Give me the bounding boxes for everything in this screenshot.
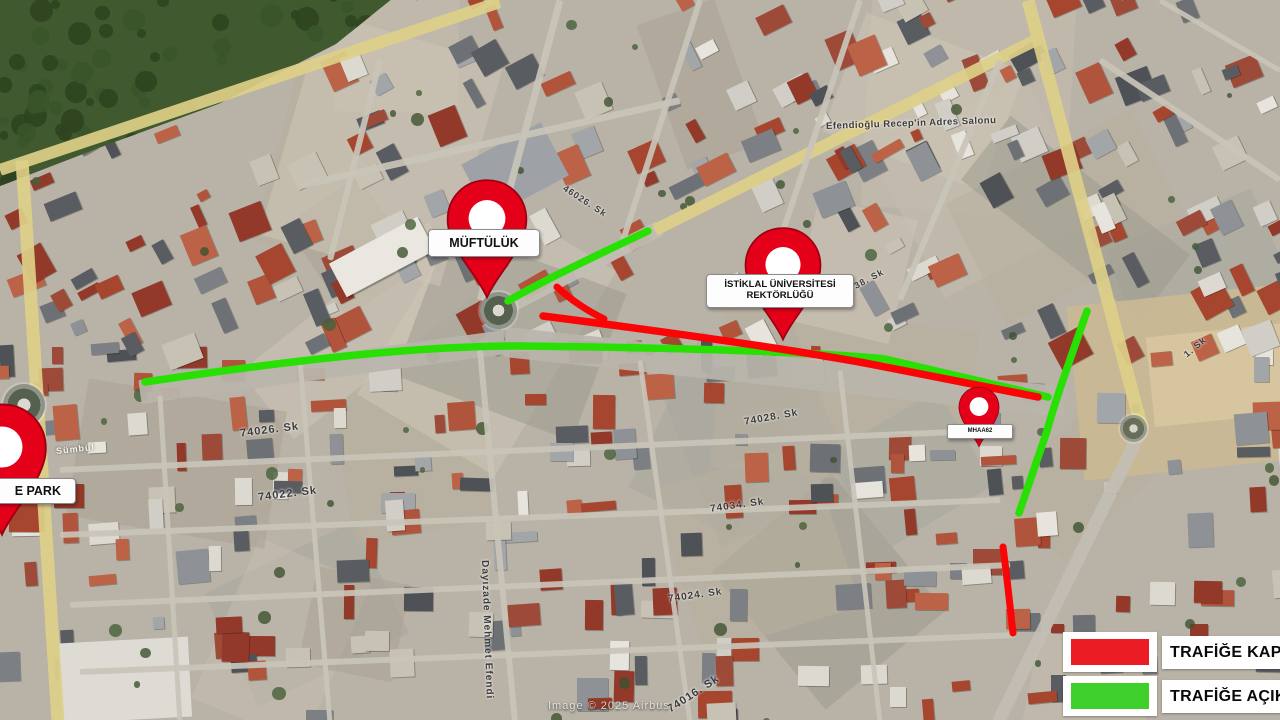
map-texture [215,616,242,633]
map-texture [1192,243,1198,249]
map-texture [216,55,227,66]
map-texture [132,281,172,317]
map-texture [194,267,227,294]
map-texture [209,546,222,572]
map-texture [541,71,575,97]
map-texture [24,562,37,587]
map-texture [1192,67,1212,95]
map-texture [91,341,120,355]
map-texture [390,110,396,116]
map-texture [125,235,145,252]
map-texture [32,177,40,185]
map-texture [1272,427,1280,449]
map-texture [221,163,231,173]
map-texture [180,225,219,266]
open-color-box [1071,683,1149,709]
map-texture [127,412,148,435]
map-texture [0,131,8,139]
map-texture [904,570,936,585]
map-texture [1194,581,1223,604]
map-texture [593,395,615,429]
map-pin-park[interactable] [0,402,52,542]
map-texture [190,204,207,228]
map-texture [267,104,277,114]
map-texture [658,190,666,198]
map-texture [915,593,948,611]
map-texture [329,0,338,2]
map-texture [116,539,130,560]
map-texture [793,128,799,134]
map-texture [1039,447,1053,467]
map-texture [1059,437,1085,469]
map-texture [704,383,725,403]
roundabout [1120,415,1147,442]
map-texture [434,414,445,433]
map-texture [30,0,53,22]
map-texture [795,562,801,568]
map-texture [197,144,205,152]
imagery-attribution: Image © 2025 Airbus [548,700,670,712]
map-texture [1236,447,1270,458]
map-texture [556,425,589,443]
map-texture [327,500,334,507]
map-texture [135,71,157,93]
map-texture [213,38,231,56]
map-texture [1006,609,1030,629]
map-texture [1009,332,1017,340]
map-texture [235,478,252,505]
map-texture [86,98,94,106]
map-texture [307,25,324,42]
map-texture [0,366,10,379]
map-texture [95,275,125,301]
pin-label-small-poi: MHAA62 [947,424,1013,439]
map-texture [1249,486,1267,512]
map-texture [202,433,223,459]
map-texture [1254,357,1269,382]
map-texture [730,589,747,621]
map-texture [865,249,877,261]
map-texture [614,583,635,616]
map-texture [1272,567,1280,598]
map-texture [889,476,917,502]
map-texture [936,532,958,545]
closed-color-box [1071,639,1149,665]
map-texture [63,513,79,543]
map-pin-small-poi[interactable] [956,386,1002,450]
map-texture [154,125,180,144]
map-texture [811,484,833,503]
map-texture [566,20,576,30]
map-texture [123,9,145,31]
map-texture [163,47,177,61]
map-texture [1269,475,1280,486]
map-texture [233,530,250,551]
map-texture [152,239,174,265]
map-texture [986,469,1002,496]
map-texture [1227,93,1233,99]
map-texture [447,401,476,430]
map-texture [208,119,229,140]
road [1159,0,1280,72]
map-texture [1081,0,1106,13]
map-texture [1037,302,1066,338]
map-pin-icon [0,402,52,542]
map-texture [799,522,807,530]
map-texture [1194,266,1202,274]
map-texture [99,89,118,108]
map-texture [256,120,275,139]
map-texture [65,81,87,103]
map-texture [1149,582,1175,606]
map-texture [52,347,63,364]
map-texture [217,130,238,151]
map-texture [228,164,239,175]
map-texture [1256,96,1277,114]
map-texture [32,27,49,44]
map-texture [1037,428,1046,437]
map-texture [323,318,336,331]
map-texture [49,101,62,114]
map-texture [1115,596,1130,613]
map-texture [1265,463,1275,473]
map-texture [744,453,768,482]
map-texture [525,394,546,406]
map-texture [258,611,271,624]
map-texture [755,4,792,36]
map-texture [397,247,408,258]
map-texture [124,133,143,152]
map-texture [78,162,102,186]
map-texture [229,396,248,430]
map-texture [259,410,274,423]
map-texture [1236,577,1246,587]
map-texture [274,567,285,578]
map-texture [891,454,904,473]
map-texture [92,49,111,68]
map-texture [222,150,246,174]
pin-label-muftuluk: MÜFTÜLÜK [428,229,540,257]
map-texture [341,1,353,13]
map-texture [95,6,110,21]
map-texture [258,93,266,101]
map-texture [291,10,300,19]
map-texture [334,408,346,428]
map-texture [336,559,369,583]
map-texture [137,29,146,38]
map-texture [212,14,229,31]
map-texture [904,509,917,535]
pin-label-park: E PARK [0,478,76,504]
map-texture [139,131,155,147]
legend-label-closed: TRAFİĞE KAPALI [1162,636,1280,669]
map-texture [260,4,283,27]
map-texture [176,549,211,585]
map-texture [507,602,540,626]
map-texture [385,499,405,531]
map-texture [139,97,150,108]
map-texture [28,90,51,113]
map-texture [175,503,184,512]
map-texture [1036,511,1058,536]
map-texture [416,90,421,95]
map-texture [681,532,703,555]
closed-route-swatch [1063,632,1157,672]
map-texture [150,52,160,62]
map-texture [197,189,211,202]
map-texture [142,186,163,207]
map-texture [1107,0,1138,16]
map-texture [148,499,163,531]
map-texture [212,143,226,157]
map-pin-icon [956,386,1002,450]
map-texture [1188,513,1214,548]
map-texture [89,574,117,587]
map-texture [68,22,90,44]
map-texture [51,0,60,9]
map-texture [1168,459,1182,474]
map-texture [71,62,93,84]
map-texture [643,373,674,400]
map-texture [1011,357,1017,363]
street-label: 46026. Sk [561,183,608,219]
map-texture [153,616,165,628]
satellite-map[interactable]: 74026. Sk 74022. Sk 74028. Sk 74034. Sk … [0,0,1280,720]
map-texture [53,404,80,441]
map-texture [200,110,223,133]
open-route-swatch [1063,676,1157,716]
map-texture [17,123,36,142]
legend-row-closed: TRAFİĞE KAPALI [0,632,1280,672]
map-texture [212,297,239,333]
map-texture [1168,196,1175,203]
map-texture [237,175,254,192]
map-texture [776,180,785,189]
legend-label-open: TRAFİĞE AÇIK ŞE [1162,680,1280,713]
map-texture [197,138,210,151]
map-texture [0,117,9,126]
map-texture [1012,475,1024,489]
map-texture [157,0,169,7]
map-texture [1096,392,1125,422]
map-texture [217,143,237,163]
pin-label-rektorluk: İSTİKLAL ÜNİVERSİTESİ REKTÖRLÜĞÜ [706,274,854,308]
map-texture [99,24,113,38]
map-texture [604,97,614,107]
map-texture [1150,351,1172,367]
map-texture [44,191,83,222]
map-texture [782,445,795,470]
map-texture [811,346,820,357]
map-texture [1234,411,1269,445]
map-texture [42,55,58,71]
map-texture [930,450,955,461]
map-texture [909,444,926,461]
map-texture [405,219,416,230]
map-texture [518,491,530,517]
map-texture [55,124,66,135]
map-texture [0,77,12,93]
map-texture [585,600,604,630]
map-texture [70,319,87,336]
map-texture [1114,37,1136,61]
map-texture [411,113,424,126]
map-texture [632,44,638,50]
map-texture [1073,522,1084,533]
map-texture [980,455,1015,466]
